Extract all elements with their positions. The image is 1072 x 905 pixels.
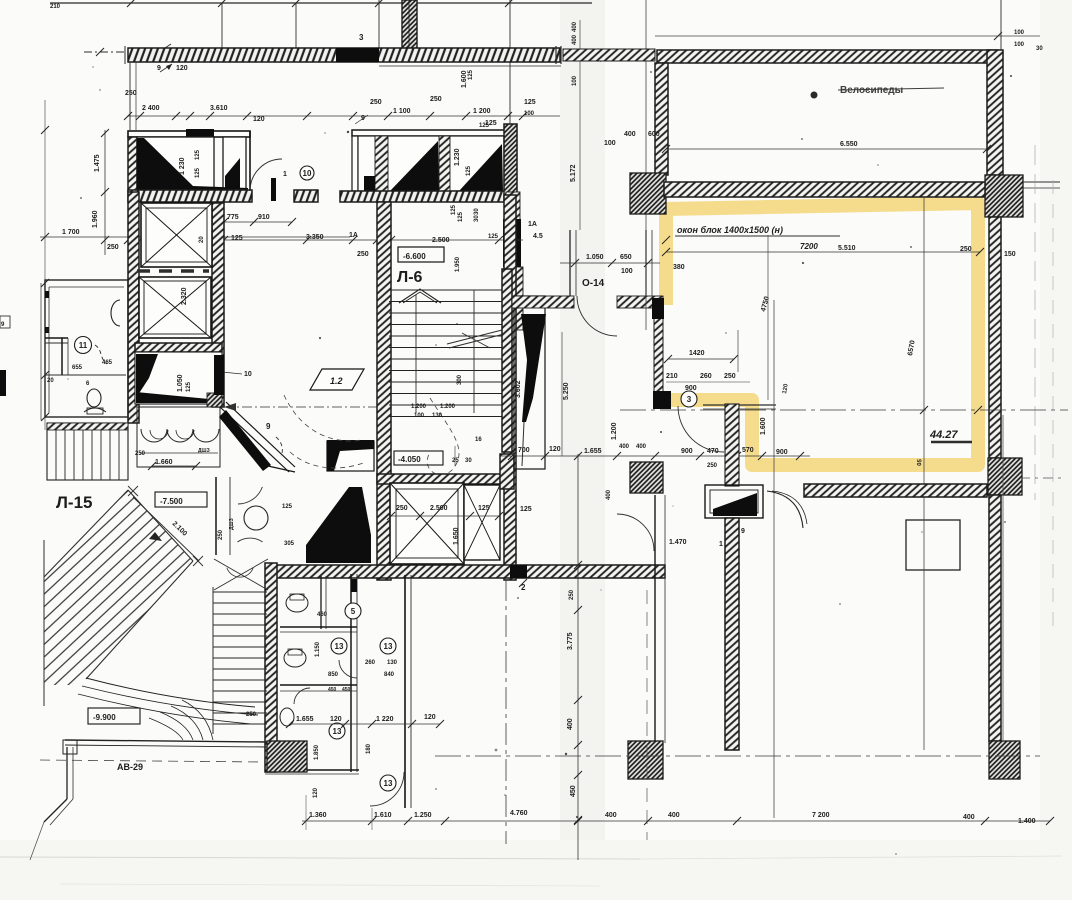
svg-text:400: 400: [572, 21, 578, 32]
svg-text:100: 100: [1014, 42, 1025, 48]
svg-text:700: 700: [518, 447, 530, 454]
svg-text:125: 125: [468, 69, 474, 80]
svg-text:1 100: 1 100: [393, 108, 411, 115]
svg-text:7200: 7200: [800, 242, 818, 251]
svg-text:1.050: 1.050: [586, 254, 604, 261]
svg-text:130: 130: [387, 660, 398, 666]
svg-text:05: 05: [917, 458, 924, 466]
svg-text:125: 125: [458, 211, 464, 222]
svg-text:465: 465: [102, 360, 113, 366]
svg-text:1 230: 1 230: [179, 157, 186, 175]
svg-text:120: 120: [176, 65, 188, 72]
svg-text:850: 850: [328, 672, 339, 678]
svg-text:120: 120: [549, 446, 561, 453]
svg-text:1.230: 1.230: [454, 148, 461, 166]
svg-text:125: 125: [451, 204, 457, 215]
svg-text:250: 250: [218, 529, 224, 540]
svg-text:1.360: 1.360: [309, 812, 327, 819]
svg-text:1.650: 1.650: [453, 527, 460, 545]
svg-text:250: 250: [107, 244, 119, 251]
svg-text:1.200: 1.200: [411, 404, 427, 410]
svg-text:125: 125: [186, 381, 192, 392]
svg-text:400: 400: [668, 812, 680, 819]
svg-text:1.2: 1.2: [330, 376, 343, 386]
svg-text:150: 150: [1004, 251, 1016, 258]
svg-text:910: 910: [258, 214, 270, 221]
svg-text:120: 120: [253, 116, 265, 123]
svg-text:250: 250: [396, 505, 408, 512]
svg-text:1.200: 1.200: [440, 404, 456, 410]
svg-text:3.775: 3.775: [567, 632, 574, 650]
svg-text:250: 250: [125, 90, 137, 97]
svg-text:4.5: 4.5: [533, 233, 543, 240]
svg-text:2.500: 2.500: [432, 237, 450, 244]
svg-text:3.610: 3.610: [210, 105, 228, 112]
svg-text:9: 9: [157, 65, 161, 72]
svg-text:1.475: 1.475: [94, 154, 101, 172]
svg-text:250: 250: [960, 246, 972, 253]
svg-text:120: 120: [424, 714, 436, 721]
svg-text:13: 13: [384, 642, 393, 651]
svg-text:30: 30: [474, 208, 480, 215]
svg-text:840: 840: [384, 672, 395, 678]
svg-text:250: 250: [707, 463, 718, 469]
svg-text:1 200: 1 200: [473, 108, 491, 115]
svg-text:250: 250: [357, 251, 369, 258]
svg-text:210: 210: [50, 4, 61, 10]
svg-text:775: 775: [227, 214, 239, 221]
svg-text:450: 450: [570, 785, 577, 797]
svg-text:7 200: 7 200: [812, 812, 830, 819]
svg-text:1 700: 1 700: [62, 229, 80, 236]
svg-text:3: 3: [359, 33, 364, 42]
svg-text:300: 300: [457, 374, 463, 385]
svg-text:13: 13: [384, 779, 393, 788]
svg-text:13: 13: [335, 642, 344, 651]
svg-text:260: 260: [365, 660, 376, 666]
svg-text:460: 460: [317, 612, 328, 618]
svg-text:20: 20: [199, 236, 205, 243]
svg-text:10: 10: [244, 371, 252, 378]
svg-text:260: 260: [700, 373, 712, 380]
svg-text:5.250: 5.250: [563, 382, 570, 400]
svg-text:1.600: 1.600: [461, 70, 468, 88]
svg-text:9: 9: [266, 422, 271, 431]
svg-text:ДШЗ: ДШЗ: [229, 518, 235, 530]
svg-text:13: 13: [333, 727, 342, 736]
svg-text:125: 125: [195, 167, 201, 178]
svg-text:125: 125: [195, 149, 201, 160]
svg-text:3: 3: [687, 395, 692, 404]
svg-text:210: 210: [666, 373, 678, 380]
svg-text:окон блок 1400х1500 (н): окон блок 1400х1500 (н): [677, 225, 783, 235]
svg-text:30: 30: [1036, 46, 1043, 52]
svg-text:1.950: 1.950: [455, 256, 461, 272]
svg-text:900: 900: [685, 385, 697, 392]
svg-text:125: 125: [485, 120, 497, 127]
svg-text:1.850: 1.850: [314, 744, 320, 760]
svg-text:1: 1: [283, 171, 287, 178]
svg-text:400: 400: [636, 444, 647, 450]
svg-text:1.960: 1.960: [92, 210, 99, 228]
svg-text:125: 125: [488, 234, 499, 240]
svg-text:100: 100: [572, 75, 578, 86]
svg-text:1.250: 1.250: [414, 812, 432, 819]
svg-text:Велосипеды: Велосипеды: [840, 85, 903, 96]
svg-text:400: 400: [619, 444, 630, 450]
svg-text:125: 125: [231, 235, 243, 242]
svg-text:120: 120: [313, 787, 319, 798]
svg-text:305: 305: [284, 541, 295, 547]
svg-text:Л-6: Л-6: [397, 269, 423, 286]
svg-text:400: 400: [624, 131, 636, 138]
svg-text:1.610: 1.610: [374, 812, 392, 819]
svg-text:6.550: 6.550: [840, 141, 858, 148]
svg-text:11: 11: [79, 341, 88, 350]
svg-text:125: 125: [524, 99, 536, 106]
svg-text:АВ-29: АВ-29: [117, 762, 143, 772]
svg-text:900: 900: [681, 448, 693, 455]
svg-text:450: 450: [328, 687, 337, 693]
svg-text:250: 250: [135, 451, 146, 457]
svg-text:5: 5: [351, 607, 356, 616]
svg-text:1.470: 1.470: [669, 539, 687, 546]
svg-text:900: 900: [776, 449, 788, 456]
svg-text:1А: 1А: [349, 232, 358, 239]
svg-text:4.760: 4.760: [510, 810, 528, 817]
svg-text:-7.500: -7.500: [160, 497, 183, 506]
svg-text:120: 120: [330, 716, 342, 723]
svg-text:125: 125: [466, 165, 472, 176]
svg-text:250: 250: [569, 589, 575, 600]
svg-text:5.172: 5.172: [570, 164, 577, 182]
svg-text:1.200: 1.200: [611, 422, 618, 440]
svg-text:44.27: 44.27: [929, 429, 958, 441]
svg-text:3.350: 3.350: [306, 234, 324, 241]
svg-text:380: 380: [673, 264, 685, 271]
svg-text:-6.600: -6.600: [403, 252, 426, 261]
svg-text:400: 400: [605, 812, 617, 819]
svg-text:1.600: 1.600: [760, 417, 767, 435]
svg-text:100: 100: [414, 413, 425, 419]
svg-text:О-14: О-14: [582, 278, 605, 289]
svg-text:1.050: 1.050: [177, 374, 184, 392]
svg-text:1420: 1420: [689, 350, 705, 357]
svg-text:-9.900: -9.900: [93, 713, 116, 722]
svg-text:1 220: 1 220: [376, 716, 394, 723]
svg-text:400: 400: [963, 814, 975, 821]
svg-text:1.400: 1.400: [1018, 818, 1036, 825]
svg-text:1.655: 1.655: [296, 716, 314, 723]
svg-text:125: 125: [282, 504, 293, 510]
svg-text:ДШЗ: ДШЗ: [198, 448, 210, 454]
svg-text:130: 130: [432, 413, 443, 419]
svg-text:180: 180: [366, 743, 372, 754]
svg-text:9: 9: [741, 528, 745, 535]
svg-text:Л-15: Л-15: [56, 493, 93, 512]
svg-text:25: 25: [452, 458, 459, 464]
svg-text:1.660: 1.660: [155, 459, 173, 466]
svg-text:100: 100: [604, 140, 616, 147]
svg-text:30: 30: [465, 458, 472, 464]
svg-text:2 400: 2 400: [142, 105, 160, 112]
svg-text:3.602: 3.602: [515, 380, 522, 398]
svg-text:1.150: 1.150: [315, 641, 321, 657]
svg-text:10: 10: [303, 169, 312, 178]
svg-text:125: 125: [520, 506, 532, 513]
svg-text:655: 655: [72, 365, 83, 371]
svg-text:250: 250: [724, 373, 736, 380]
svg-text:400: 400: [572, 34, 578, 45]
svg-text:250: 250: [246, 712, 257, 718]
svg-text:600: 600: [648, 131, 660, 138]
svg-text:20: 20: [47, 378, 54, 384]
svg-text:5.510: 5.510: [838, 245, 856, 252]
svg-text:100: 100: [524, 111, 535, 117]
svg-text:-4.050: -4.050: [398, 455, 421, 464]
svg-text:100: 100: [1014, 30, 1025, 36]
svg-text:1.655: 1.655: [584, 448, 602, 455]
svg-text:1А: 1А: [528, 221, 537, 228]
svg-text:450: 450: [342, 687, 351, 693]
svg-text:400: 400: [567, 718, 574, 730]
svg-text:16: 16: [475, 437, 482, 443]
svg-text:650: 650: [620, 254, 632, 261]
svg-text:250: 250: [370, 99, 382, 106]
svg-text:2.320: 2.320: [181, 287, 188, 305]
svg-text:2.500: 2.500: [430, 505, 448, 512]
svg-text:250: 250: [430, 96, 442, 103]
svg-text:400: 400: [606, 489, 612, 500]
svg-text:100: 100: [621, 268, 633, 275]
svg-text:125: 125: [478, 505, 490, 512]
svg-text:570: 570: [742, 447, 754, 454]
